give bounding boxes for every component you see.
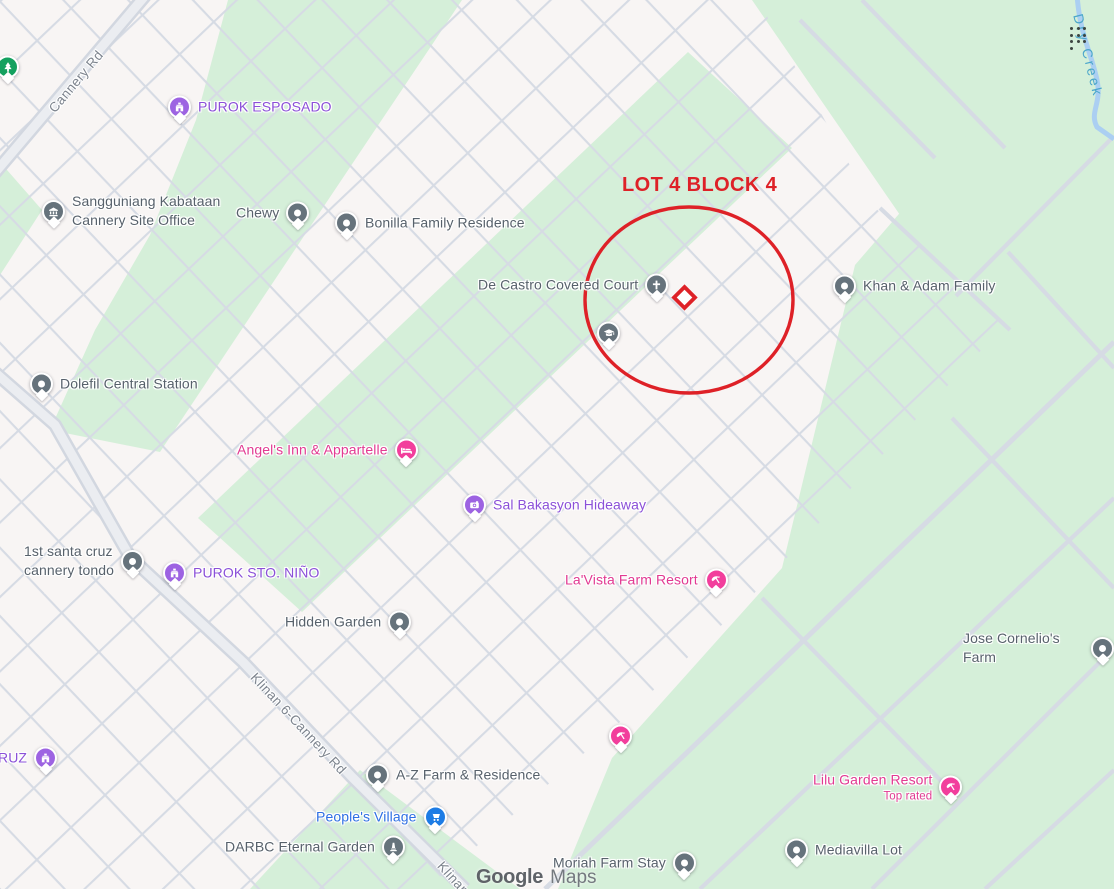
poi-label[interactable]: A-Z Farm & Residence bbox=[396, 766, 540, 785]
poi-label[interactable]: 1st santa cruz cannery tondo bbox=[24, 542, 114, 580]
poi-label[interactable]: Jose Cornelio's Farm bbox=[963, 629, 1084, 667]
top-rated-badge: Top rated bbox=[883, 790, 932, 804]
poi-label[interactable]: Hidden Garden bbox=[285, 613, 381, 632]
poi-resort-unnamed[interactable] bbox=[609, 725, 632, 748]
government-building-icon bbox=[168, 96, 191, 119]
poi-sal-bakasyon-hideaway[interactable]: Sal Bakasyon Hideaway bbox=[463, 494, 646, 517]
poi-purok-esposado[interactable]: PUROK ESPOSADO bbox=[168, 96, 332, 119]
poi-label[interactable]: Chewy bbox=[236, 204, 279, 223]
poi-label[interactable]: Sal Bakasyon Hideaway bbox=[493, 496, 646, 515]
google-maps-canvas[interactable]: LOT 4 BLOCK 4 Cannery Rd Klinan 6-Canner… bbox=[0, 0, 1114, 889]
poi-dot-icon bbox=[1091, 637, 1114, 660]
poi-label[interactable]: Khan & Adam Family bbox=[863, 277, 996, 296]
government-building-icon bbox=[34, 747, 57, 770]
government-building-icon bbox=[163, 562, 186, 585]
poi-lilu-garden-resort[interactable]: Lilu Garden Resort Top rated bbox=[813, 771, 962, 804]
poi-label[interactable]: Lilu Garden Resort Top rated bbox=[813, 771, 932, 804]
lot-annotation-title: LOT 4 BLOCK 4 bbox=[622, 174, 777, 197]
poi-label[interactable]: Angel's Inn & Appartelle bbox=[237, 441, 388, 460]
poi-first-santa-cruz-cannery-tondo[interactable]: 1st santa cruz cannery tondo bbox=[24, 542, 144, 580]
google-logo: Google bbox=[476, 866, 543, 888]
poi-darbc-eternal-garden[interactable]: DARBC Eternal Garden bbox=[225, 836, 405, 859]
poi-dot-icon bbox=[121, 550, 144, 573]
poi-label[interactable]: De Castro Covered Court bbox=[478, 276, 638, 295]
poi-hidden-garden[interactable]: Hidden Garden bbox=[285, 611, 411, 634]
poi-bonilla-family-residence[interactable]: Bonilla Family Residence bbox=[335, 212, 525, 235]
maps-label: Maps bbox=[550, 867, 596, 888]
poi-dot-icon bbox=[673, 852, 696, 875]
bed-icon bbox=[395, 439, 418, 462]
google-maps-watermark[interactable]: GoogleMaps bbox=[476, 866, 597, 889]
poi-dot-icon bbox=[366, 764, 389, 787]
resort-umbrella-icon bbox=[609, 725, 632, 748]
church-cross-icon bbox=[645, 274, 668, 297]
memorial-icon bbox=[382, 836, 405, 859]
tree-icon bbox=[0, 56, 19, 79]
poi-mediavilla-lot[interactable]: Mediavilla Lot bbox=[785, 839, 902, 862]
poi-az-farm-residence[interactable]: A-Z Farm & Residence bbox=[366, 764, 540, 787]
map-base-layer bbox=[0, 0, 1114, 889]
poi-angels-inn-appartelle[interactable]: Angel's Inn & Appartelle bbox=[237, 439, 418, 462]
shopping-cart-icon bbox=[424, 806, 447, 829]
poi-school[interactable] bbox=[597, 322, 620, 345]
poi-label[interactable]: RUZ bbox=[0, 749, 27, 768]
poi-dot-icon bbox=[286, 202, 309, 225]
poi-sta-cruz-partial[interactable]: RUZ bbox=[0, 747, 57, 770]
poi-purok-sto-nino[interactable]: PUROK STO. NIÑO bbox=[163, 562, 319, 585]
camera-icon bbox=[463, 494, 486, 517]
poi-jose-cornelios-farm[interactable]: Jose Cornelio's Farm bbox=[963, 629, 1114, 667]
poi-dot-icon bbox=[388, 611, 411, 634]
poi-label[interactable]: Sangguniang Kabataan Cannery Site Office bbox=[72, 192, 220, 230]
poi-dot-icon bbox=[30, 373, 53, 396]
poi-label[interactable]: PUROK ESPOSADO bbox=[198, 98, 332, 117]
poi-label[interactable]: Mediavilla Lot bbox=[815, 841, 902, 860]
poi-de-castro-covered-court[interactable]: De Castro Covered Court bbox=[478, 274, 668, 297]
poi-label[interactable]: Bonilla Family Residence bbox=[365, 214, 525, 233]
poi-dot-icon bbox=[833, 275, 856, 298]
poi-chewy[interactable]: Chewy bbox=[236, 202, 309, 225]
poi-peoples-village[interactable]: People's Village bbox=[316, 806, 447, 829]
poi-sangguniang-kabataan-office[interactable]: Sangguniang Kabataan Cannery Site Office bbox=[42, 192, 220, 230]
poi-dolefil-central-station[interactable]: Dolefil Central Station bbox=[30, 373, 198, 396]
poi-label[interactable]: La'Vista Farm Resort bbox=[565, 571, 698, 590]
poi-khan-adam-family[interactable]: Khan & Adam Family bbox=[833, 275, 996, 298]
poi-lavista-farm-resort[interactable]: La'Vista Farm Resort bbox=[565, 569, 728, 592]
poi-dot-icon bbox=[785, 839, 808, 862]
resort-umbrella-icon bbox=[705, 569, 728, 592]
poi-park[interactable] bbox=[0, 56, 19, 79]
poi-label[interactable]: DARBC Eternal Garden bbox=[225, 838, 375, 857]
resort-umbrella-icon bbox=[939, 776, 962, 799]
graduation-cap-icon bbox=[597, 322, 620, 345]
poi-dot-icon bbox=[335, 212, 358, 235]
poi-label[interactable]: Dolefil Central Station bbox=[60, 375, 198, 394]
bank-icon bbox=[42, 200, 65, 223]
poi-label[interactable]: PUROK STO. NIÑO bbox=[193, 564, 319, 583]
poi-label[interactable]: People's Village bbox=[316, 808, 417, 827]
poi-label-title: Lilu Garden Resort bbox=[813, 771, 932, 790]
